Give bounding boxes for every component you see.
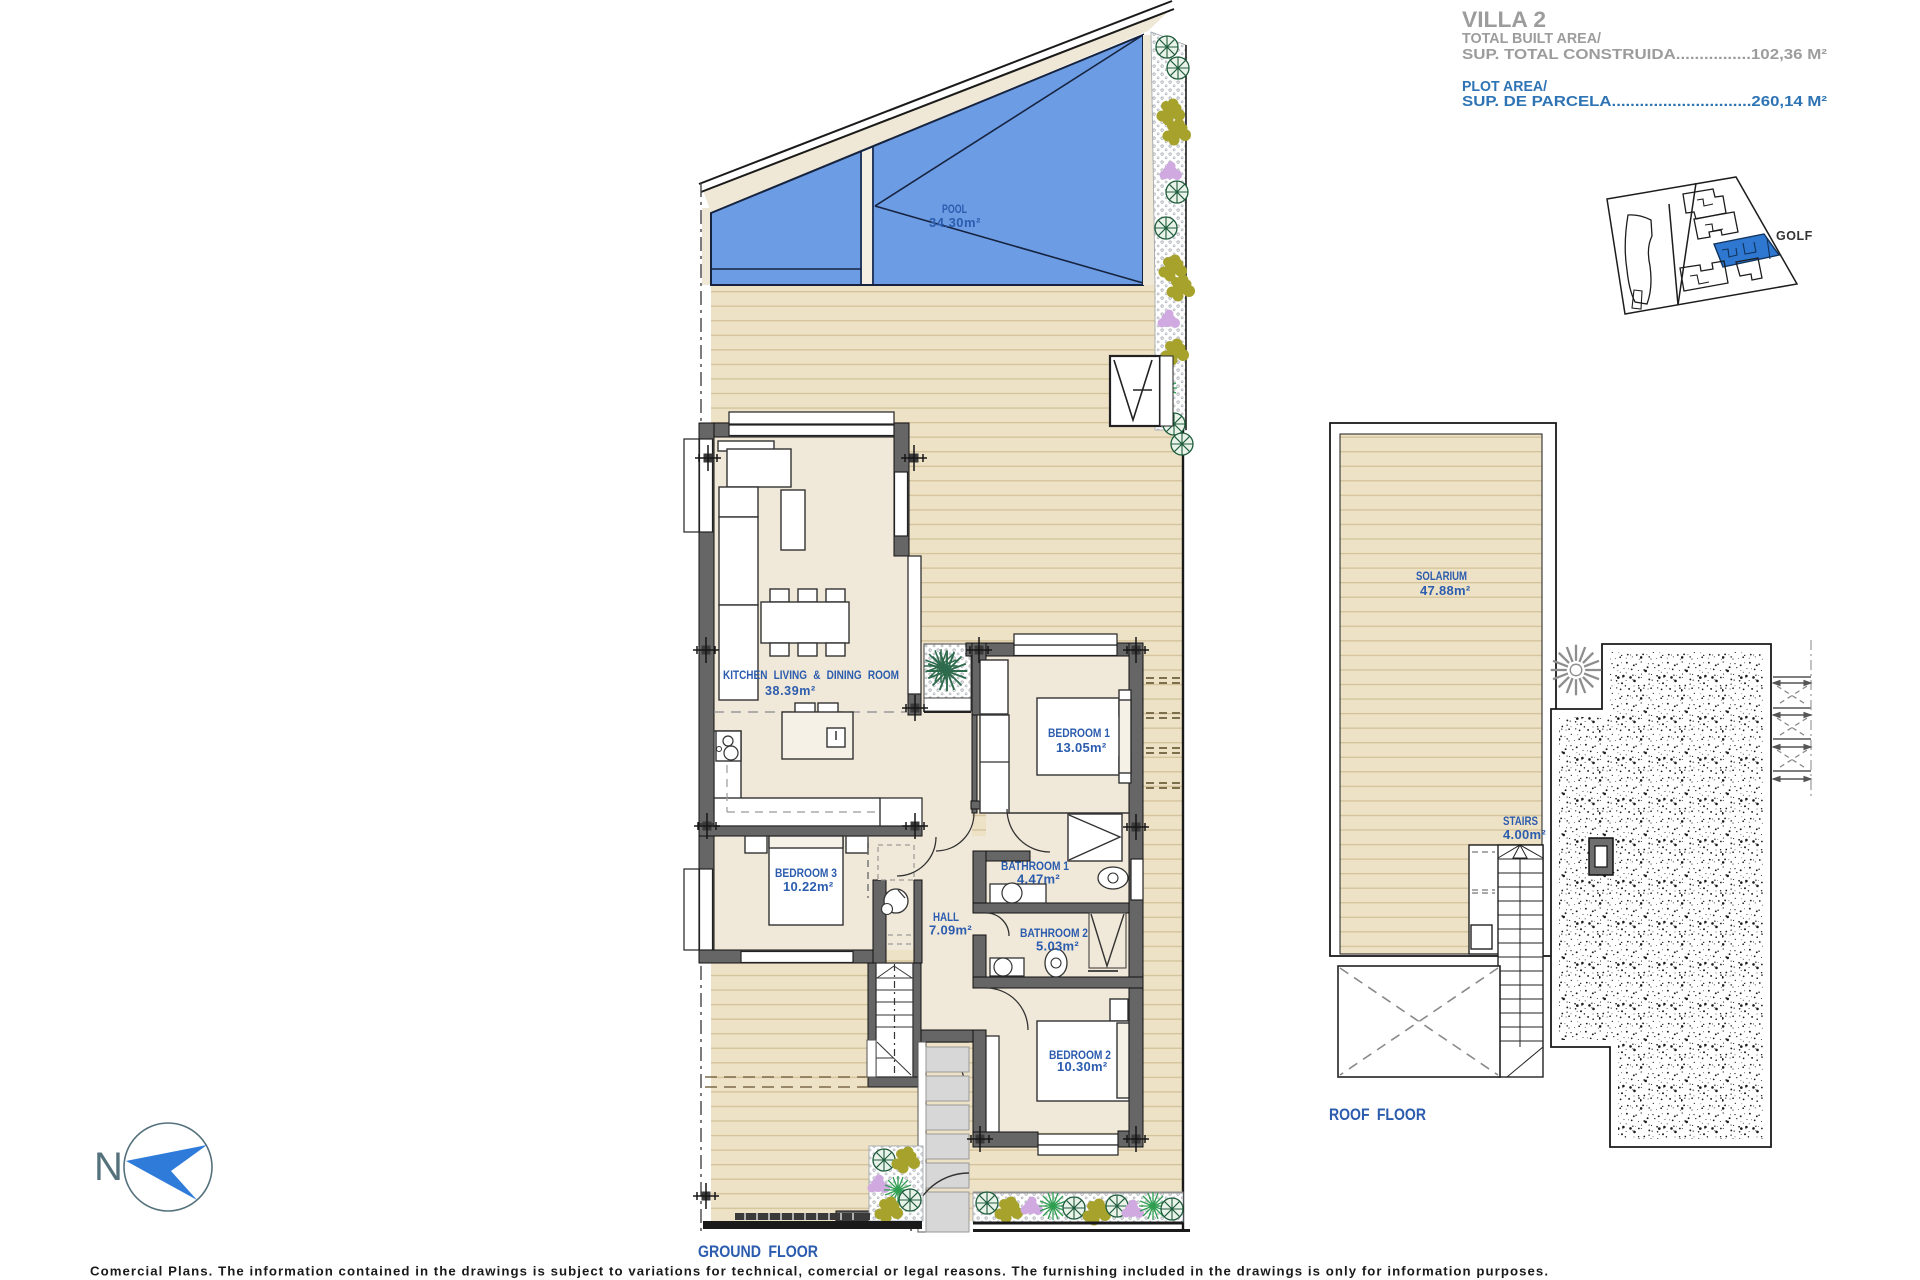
svg-text:38.39m²: 38.39m² <box>765 684 816 698</box>
svg-text:Comercial Plans. The informati: Comercial Plans. The information contain… <box>90 1264 1548 1279</box>
svg-text:VILLA 2: VILLA 2 <box>1462 7 1546 32</box>
svg-text:13.05m²: 13.05m² <box>1056 740 1107 755</box>
svg-text:BEDROOM 3: BEDROOM 3 <box>775 866 837 880</box>
svg-text:GOLF: GOLF <box>1776 229 1813 243</box>
svg-text:4.00m²: 4.00m² <box>1503 827 1546 842</box>
svg-text:STAIRS: STAIRS <box>1503 814 1538 828</box>
svg-text:4.47m²: 4.47m² <box>1017 872 1060 887</box>
svg-text:SUP. TOTAL CONSTRUIDA.........: SUP. TOTAL CONSTRUIDA................102… <box>1462 47 1827 63</box>
svg-text:SOLARIUM: SOLARIUM <box>1416 569 1467 583</box>
svg-text:5.03m²: 5.03m² <box>1036 939 1079 954</box>
svg-text:34.30m²: 34.30m² <box>929 215 981 230</box>
svg-text:GROUND FLOOR: GROUND FLOOR <box>698 1243 818 1261</box>
svg-text:N: N <box>94 1145 123 1189</box>
svg-text:SUP. DE PARCELA...............: SUP. DE PARCELA.........................… <box>1462 94 1827 110</box>
svg-text:KITCHEN LIVING & DINING ROOM: KITCHEN LIVING & DINING ROOM <box>723 670 899 682</box>
svg-text:47.88m²: 47.88m² <box>1420 583 1471 598</box>
svg-text:ROOF FLOOR: ROOF FLOOR <box>1329 1106 1426 1124</box>
svg-text:POOL: POOL <box>942 202 967 216</box>
svg-text:10.30m²: 10.30m² <box>1057 1059 1108 1074</box>
svg-text:TOTAL BUILT AREA/: TOTAL BUILT AREA/ <box>1462 31 1601 47</box>
svg-text:BEDROOM 1: BEDROOM 1 <box>1048 726 1110 740</box>
svg-text:10.22m²: 10.22m² <box>783 879 834 894</box>
svg-text:PLOT AREA/: PLOT AREA/ <box>1462 79 1547 95</box>
svg-text:7.09m²: 7.09m² <box>929 923 972 938</box>
